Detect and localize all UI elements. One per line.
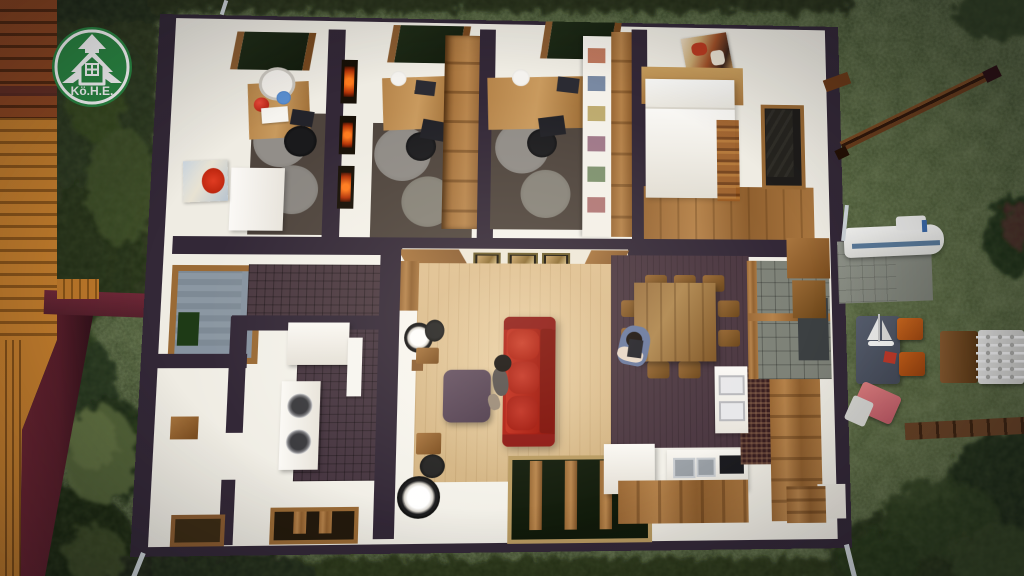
svg-text:Kö.H.E.: Kö.H.E. (71, 84, 114, 98)
